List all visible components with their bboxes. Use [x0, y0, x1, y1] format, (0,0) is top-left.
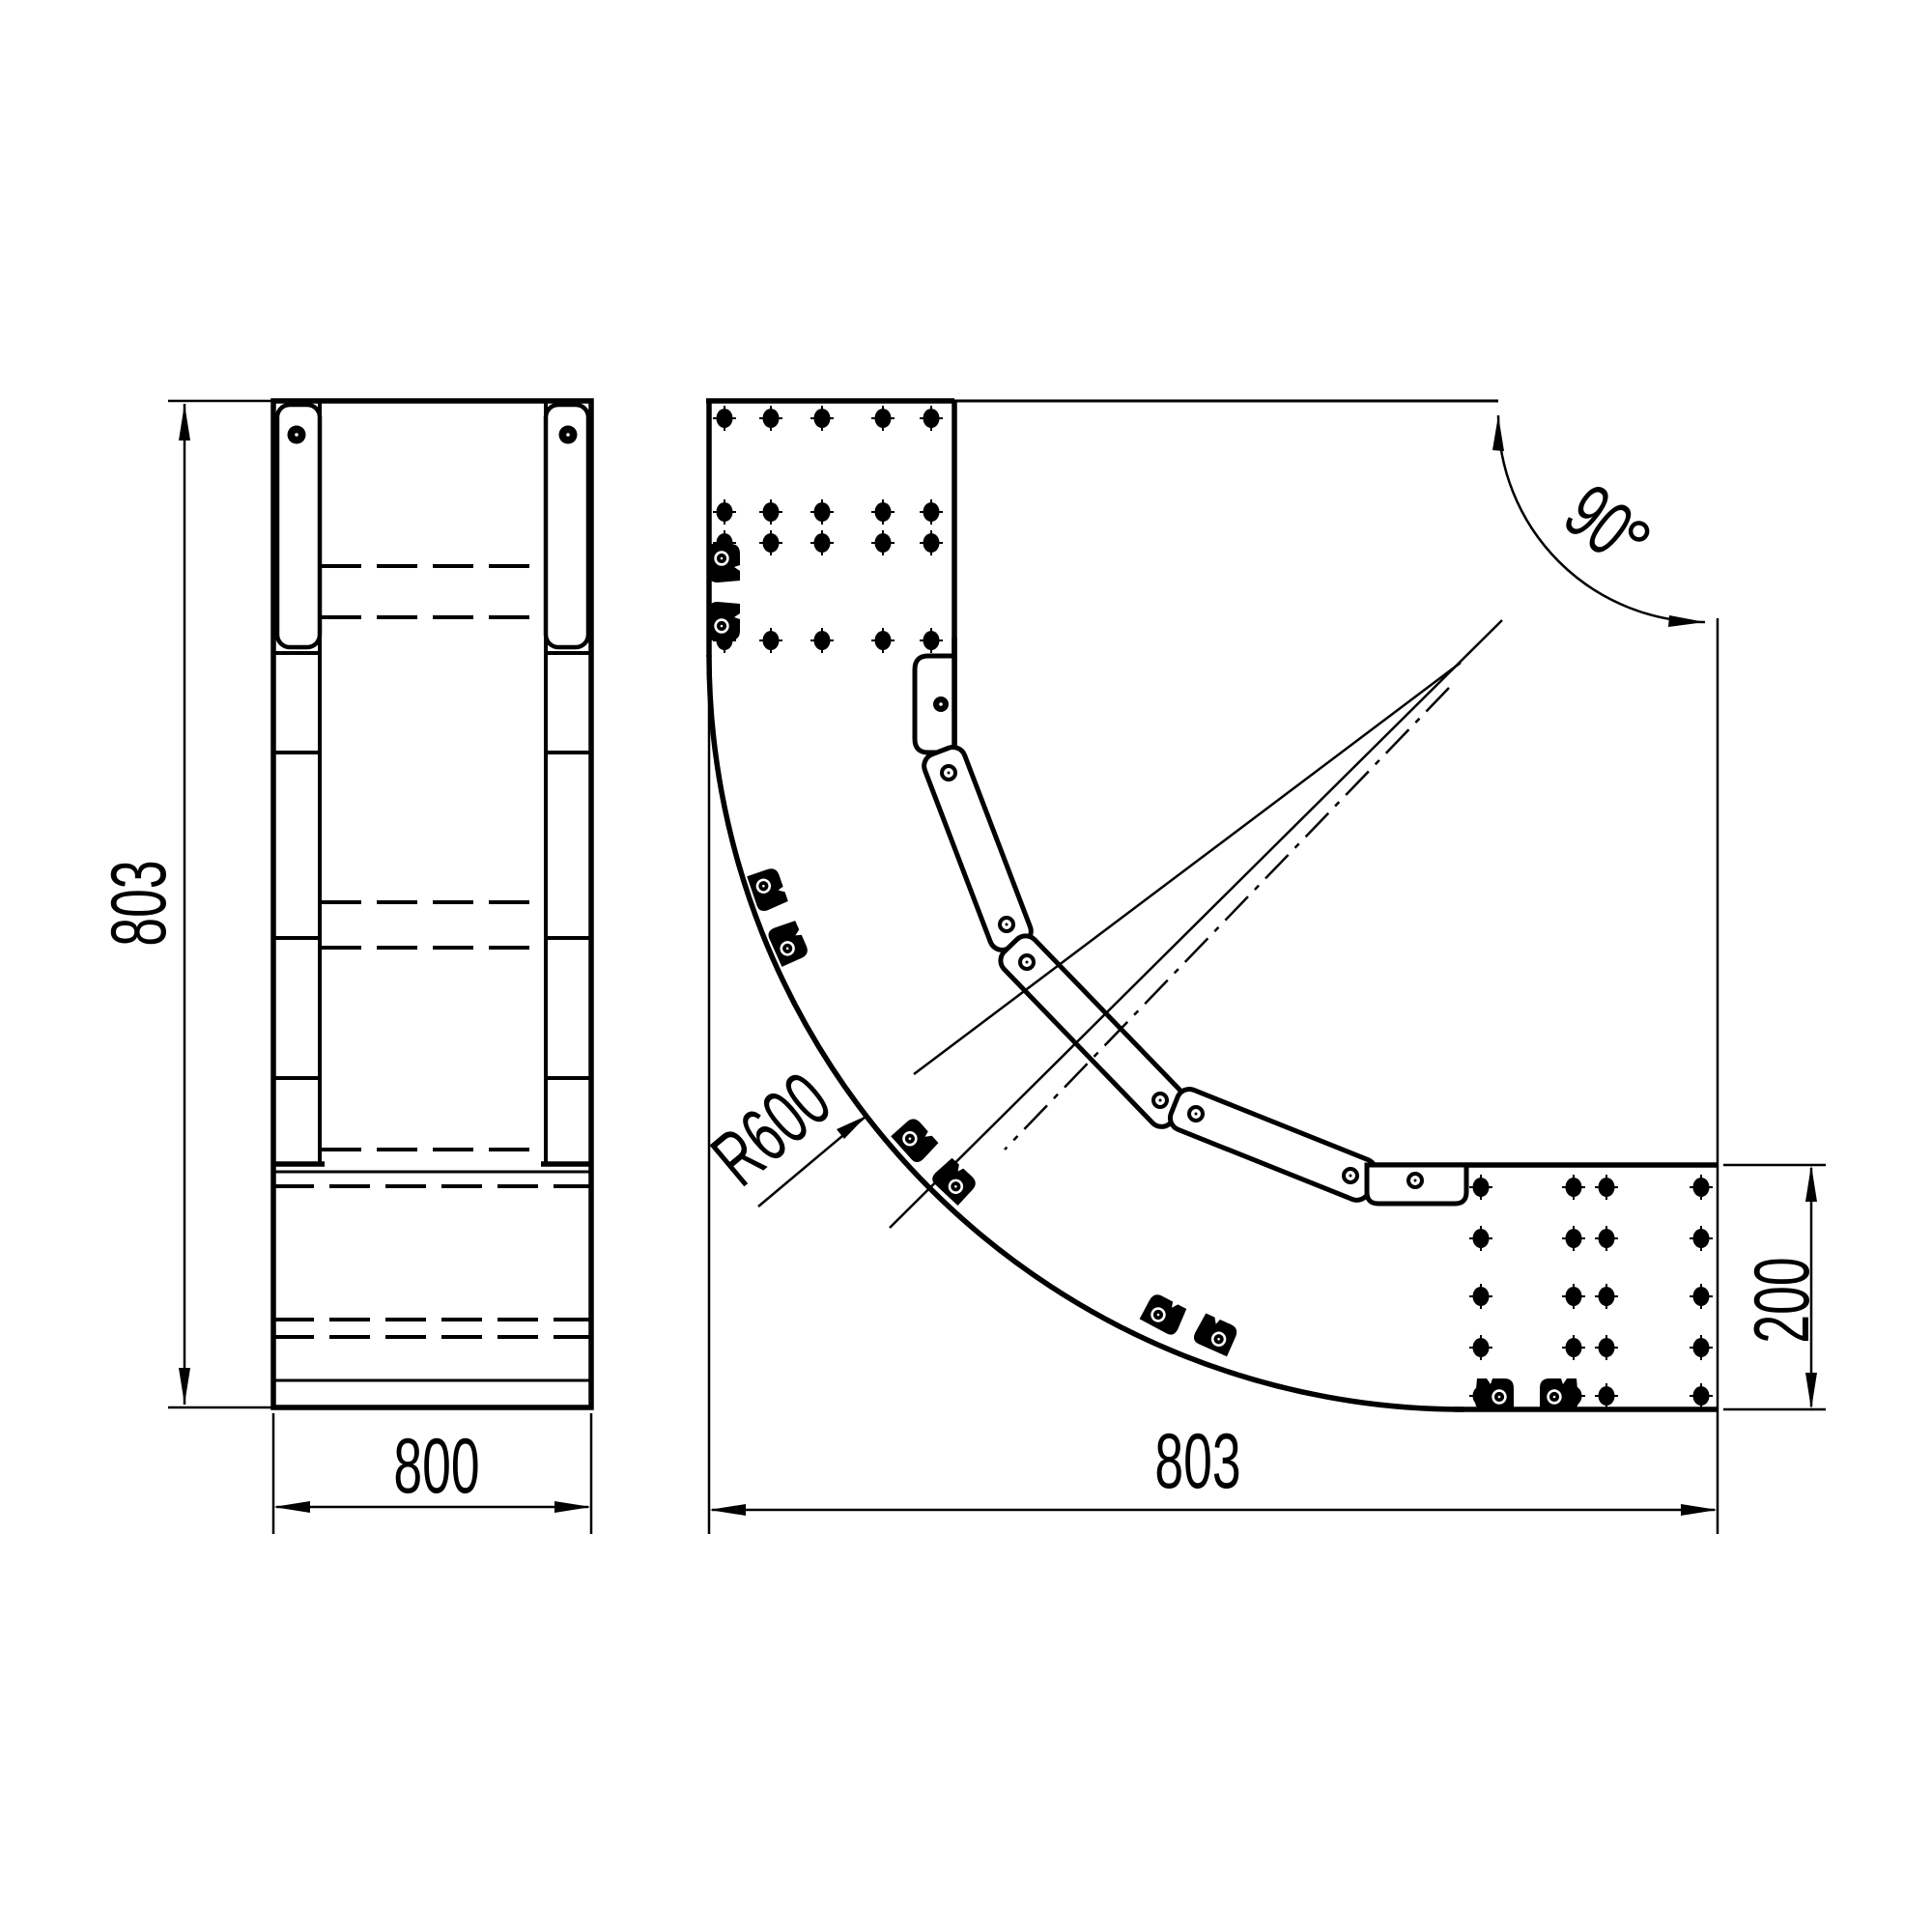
svg-text:800: 800 — [393, 1422, 479, 1510]
svg-text:803: 803 — [1154, 1417, 1240, 1505]
svg-text:200: 200 — [1738, 1257, 1826, 1343]
svg-text:803: 803 — [95, 860, 183, 946]
